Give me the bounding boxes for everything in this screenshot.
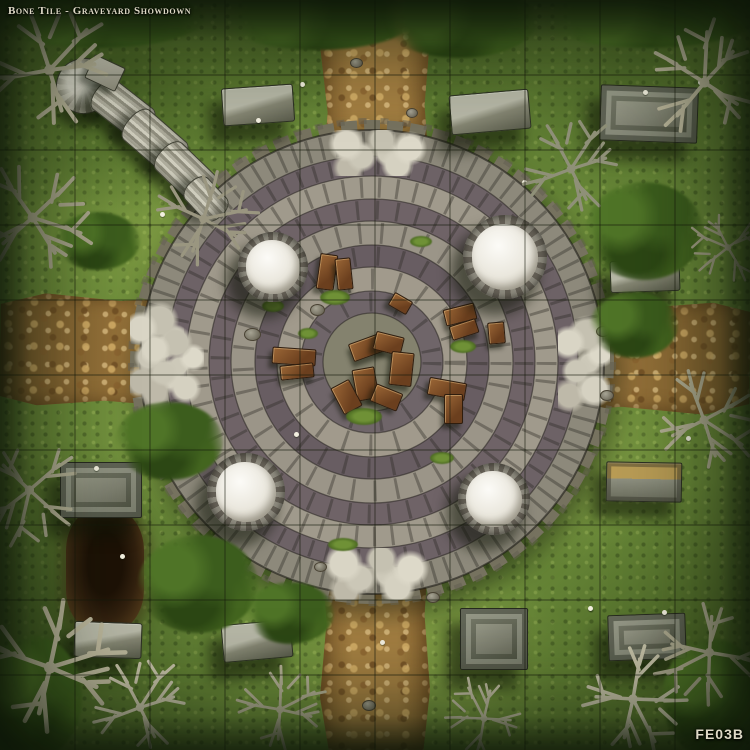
rubble-block: [444, 394, 463, 424]
rubble-block: [334, 257, 353, 290]
dead-tree-icon: [639, 364, 750, 476]
pebble: [314, 562, 327, 572]
marble-column: [458, 463, 530, 535]
pebble: [362, 700, 376, 711]
moss-patch: [346, 408, 382, 425]
flower: [294, 432, 299, 437]
rubble-block: [487, 321, 506, 344]
moss-patch: [328, 538, 358, 551]
dead-tree-icon: [674, 200, 750, 295]
foliage: [246, 582, 334, 644]
moss-patch: [320, 290, 350, 305]
pebble: [310, 304, 325, 316]
moss-patch: [450, 340, 476, 353]
dead-tree: [65, 655, 215, 750]
pebble: [600, 390, 614, 401]
foliage: [590, 292, 678, 358]
flower: [588, 606, 593, 611]
flower: [94, 466, 99, 471]
pebble: [244, 328, 261, 341]
broken-slabs: [142, 324, 204, 408]
pebble: [406, 108, 418, 118]
moss-patch: [430, 452, 454, 464]
pebble: [350, 58, 363, 68]
flower: [380, 640, 385, 645]
flower: [300, 82, 305, 87]
graveyard-battle-map: Bone Tile - Graveyard Showdown FE03B: [0, 0, 750, 750]
tile-code: FE03B: [695, 726, 744, 742]
flower: [256, 118, 261, 123]
dead-tree: [512, 115, 630, 223]
flower: [120, 554, 125, 559]
pebble: [426, 592, 440, 603]
marble-column: [207, 453, 285, 531]
map-title: Bone Tile - Graveyard Showdown: [8, 5, 191, 17]
moss-patch: [298, 328, 318, 339]
cobblestones: [326, 130, 428, 176]
rubble-block: [388, 351, 414, 387]
dead-tree: [639, 364, 750, 476]
foliage: [138, 535, 258, 633]
moss-patch: [410, 236, 432, 247]
dead-tree-icon: [65, 655, 215, 750]
foliage: [115, 402, 223, 480]
dead-tree: [674, 200, 750, 295]
cobblestones: [322, 548, 430, 600]
dead-tree-icon: [512, 115, 630, 223]
marble-column: [463, 215, 547, 299]
